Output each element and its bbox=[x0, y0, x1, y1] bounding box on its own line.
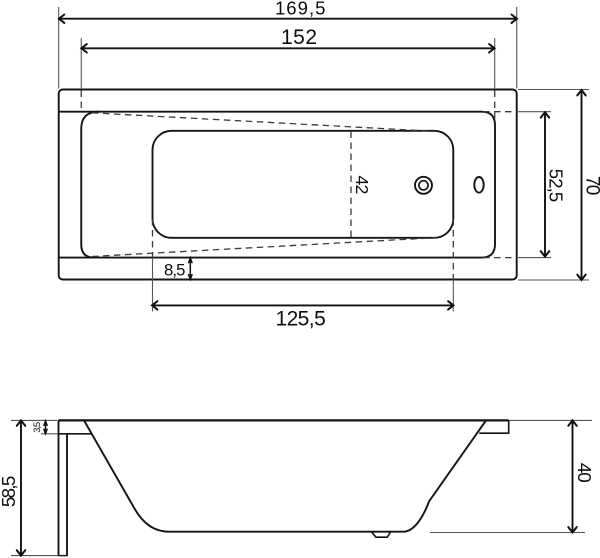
svg-text:8,5: 8,5 bbox=[164, 260, 186, 279]
svg-text:3,5: 3,5 bbox=[31, 422, 42, 433]
svg-text:58,5: 58,5 bbox=[0, 476, 19, 508]
svg-text:52,5: 52,5 bbox=[545, 169, 566, 203]
svg-text:152: 152 bbox=[281, 26, 317, 49]
svg-text:70: 70 bbox=[581, 176, 600, 196]
svg-text:42: 42 bbox=[352, 175, 372, 194]
svg-text:169,5: 169,5 bbox=[275, 0, 326, 18]
svg-text:125,5: 125,5 bbox=[275, 308, 325, 331]
svg-text:40: 40 bbox=[573, 463, 594, 483]
